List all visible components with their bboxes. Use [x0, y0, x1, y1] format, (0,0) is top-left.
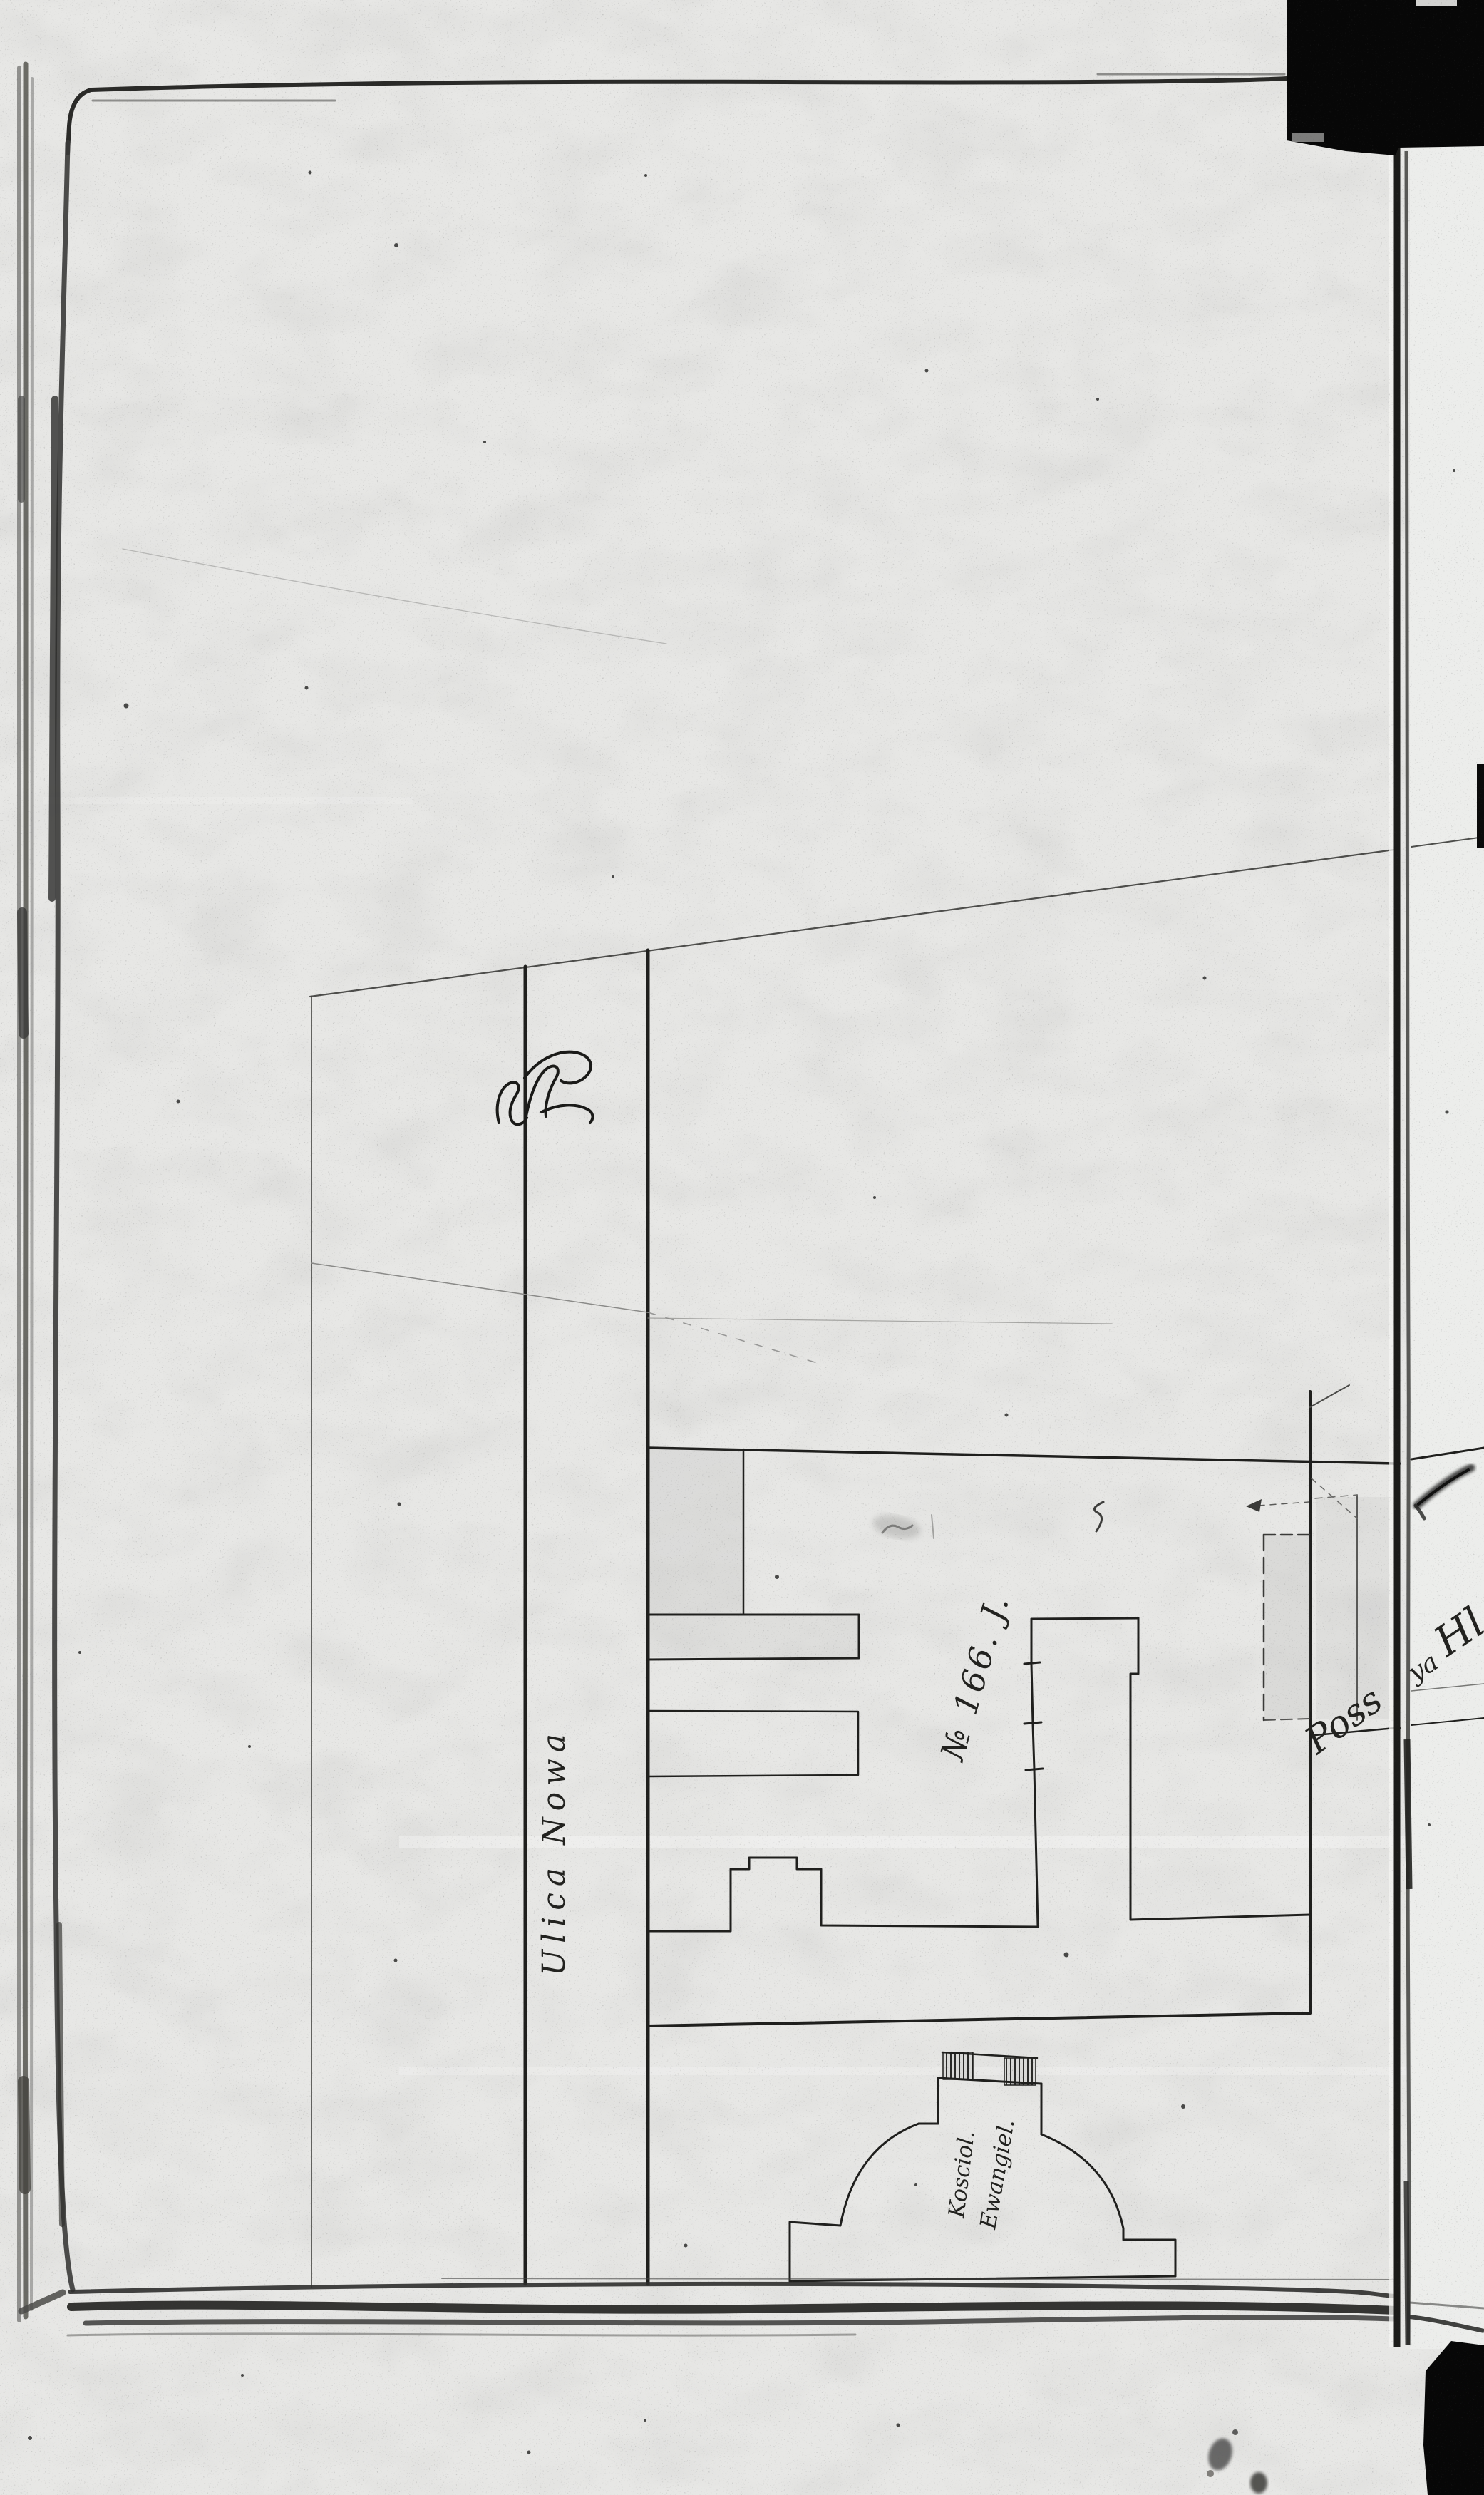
- scanned-page: Ulica Nowa № 166. J. Kosciol. Ewangiel. …: [0, 0, 1484, 2495]
- grain-overlay: [0, 0, 1484, 2495]
- scan-artwork: Ulica Nowa № 166. J. Kosciol. Ewangiel. …: [0, 0, 1484, 2495]
